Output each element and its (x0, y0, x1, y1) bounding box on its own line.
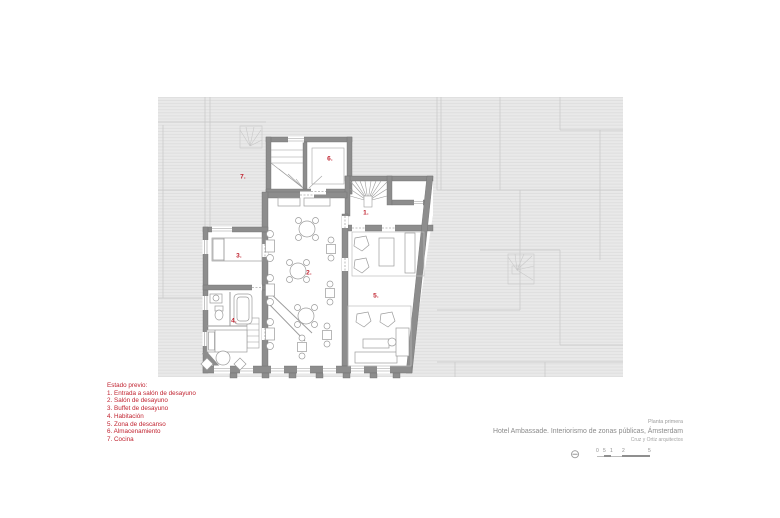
room-label-6: 6. (327, 156, 333, 163)
legend: Estado previo: 1. Entrada a salón de des… (107, 382, 196, 444)
room-label-2: 2. (306, 270, 312, 277)
scale-tick-label: 0 (596, 448, 599, 454)
compass-icon: ⊖ (570, 448, 580, 460)
legend-title: Estado previo: (107, 382, 196, 390)
scale-bar-segment (622, 455, 650, 457)
drawing-sheet: 1. 2. 3. 4. 5. 6. 7. Estado previo: 1. E… (0, 0, 780, 518)
architects-credit: Cruz y Ortiz arquitectos (493, 437, 683, 443)
room-label-7: 7. (240, 174, 246, 181)
legend-item: 4. Habitación (107, 413, 196, 421)
scale-tick-label: 2 (622, 448, 625, 454)
legend-item: 2. Salón de desayuno (107, 397, 196, 405)
room-label-3: 3. (236, 253, 242, 260)
plan-name: Planta primera (493, 419, 683, 425)
project-title: Hotel Ambassade. Interiorismo de zonas p… (493, 428, 683, 435)
legend-item: 7. Cocina (107, 436, 196, 444)
room-label-5: 5. (373, 293, 379, 300)
room-label-1: 1. (363, 210, 369, 217)
scale-bar-segment (604, 455, 611, 457)
scale-tick-label: 5 (648, 448, 651, 454)
room-label-4: 4. (231, 318, 237, 325)
legend-item: 1. Entrada a salón de desayuno (107, 390, 196, 398)
scale-tick-label: 1 (610, 448, 613, 454)
legend-item: 6. Almacenamiento (107, 428, 196, 436)
scale-bar: ⊖ 0 5 1 2 5 (570, 447, 660, 463)
legend-item: 3. Buffet de desayuno (107, 405, 196, 413)
scale-tick-label: 5 (603, 448, 606, 454)
legend-item: 5. Zona de descanso (107, 421, 196, 429)
title-block: Planta primera Hotel Ambassade. Interior… (493, 419, 683, 443)
